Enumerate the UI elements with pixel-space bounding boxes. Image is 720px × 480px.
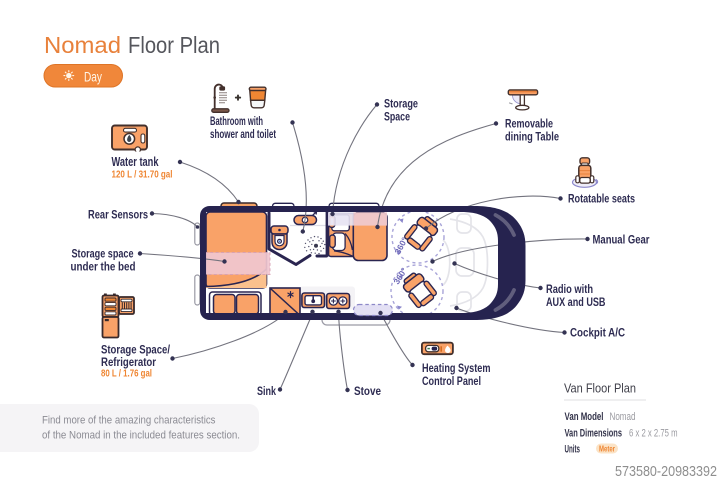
svg-text:573580-20983392: 573580-20983392: [615, 463, 717, 480]
svg-text:Meter: Meter: [599, 444, 615, 454]
svg-text:Floor Plan: Floor Plan: [128, 32, 220, 58]
svg-text:Day: Day: [84, 70, 102, 85]
svg-text:Find more of the amazing chara: Find more of the amazing characteristics: [42, 415, 216, 427]
svg-text:shower and toilet: shower and toilet: [210, 127, 276, 141]
svg-text:dining Table: dining Table: [505, 130, 559, 144]
svg-text:Cockpit A/C: Cockpit A/C: [570, 326, 625, 340]
svg-text:Radio with: Radio with: [546, 282, 593, 296]
svg-text:Van Floor Plan: Van Floor Plan: [564, 381, 636, 396]
svg-text:Water tank: Water tank: [112, 155, 159, 169]
svg-text:Nomad: Nomad: [610, 411, 636, 423]
svg-text:Manual Gear: Manual Gear: [593, 233, 650, 247]
svg-text:Storage: Storage: [384, 97, 418, 111]
svg-text:Rotatable seats: Rotatable seats: [568, 192, 635, 206]
svg-text:AUX and USB: AUX and USB: [546, 295, 606, 309]
svg-text:Control Panel: Control Panel: [422, 374, 481, 388]
svg-text:under the bed: under the bed: [71, 260, 136, 274]
svg-text:Van Dimensions: Van Dimensions: [565, 428, 623, 440]
svg-text:of the Nomad in the included f: of the Nomad in the included features se…: [42, 430, 240, 442]
svg-text:Refrigerator: Refrigerator: [101, 355, 156, 369]
svg-text:Van Model: Van Model: [565, 411, 604, 423]
svg-text:120 L / 31.70 gal: 120 L / 31.70 gal: [112, 170, 173, 181]
svg-text:Removable: Removable: [505, 117, 553, 131]
svg-text:Heating System: Heating System: [422, 361, 491, 375]
svg-text:Rear Sensors: Rear Sensors: [88, 208, 148, 222]
svg-text:Sink: Sink: [257, 384, 276, 398]
svg-text:Nomad: Nomad: [44, 32, 121, 58]
svg-text:Space: Space: [384, 110, 410, 124]
svg-text:80 L / 1.76 gal: 80 L / 1.76 gal: [101, 369, 152, 380]
svg-text:Bathroom with: Bathroom with: [210, 114, 263, 128]
svg-text:Units: Units: [565, 444, 581, 456]
svg-text:6 x 2 x 2.75 m: 6 x 2 x 2.75 m: [629, 428, 678, 440]
svg-text:Stove: Stove: [354, 384, 381, 398]
svg-text:Storage space: Storage space: [72, 247, 134, 261]
